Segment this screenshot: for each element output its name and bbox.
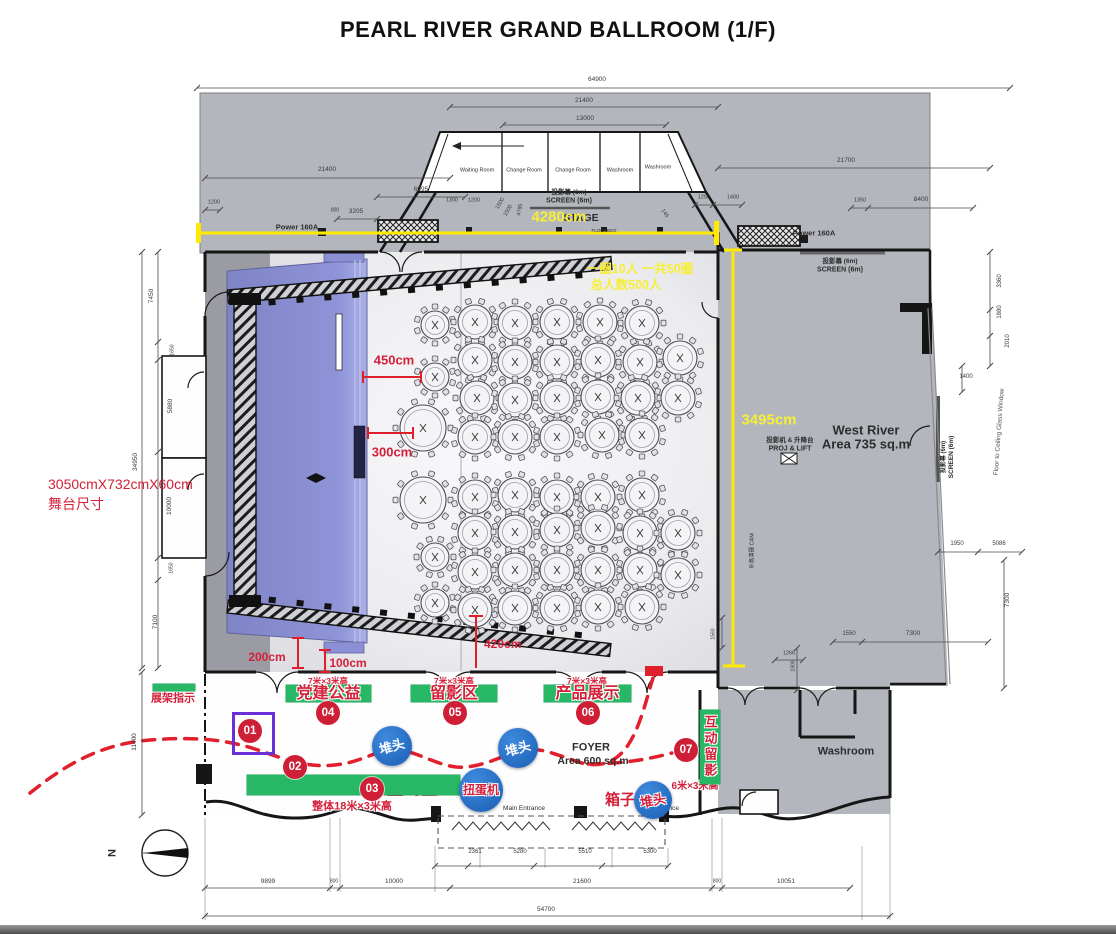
stage-screen-bar <box>336 314 342 370</box>
floor-plan-svg <box>0 0 1116 934</box>
bottom-bar <box>0 925 1116 934</box>
north-compass <box>142 830 188 876</box>
floor-plan-page: { "title": "PEARL RIVER GRAND BALLROOM (… <box>0 0 1116 934</box>
truss-left <box>229 293 261 607</box>
route-wall-marker <box>645 666 663 676</box>
stage-console <box>354 426 365 478</box>
entrance-vestibule <box>438 816 665 848</box>
